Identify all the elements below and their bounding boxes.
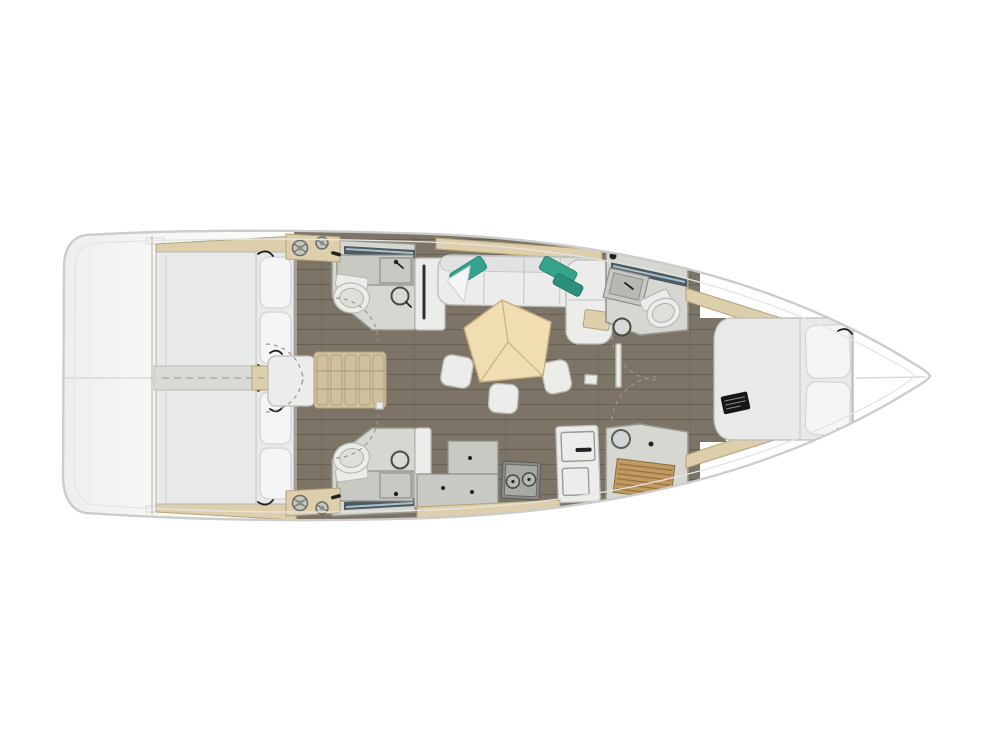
floor-hatch [585,375,597,385]
deck-hardware-port [286,234,341,262]
floor-hatch [376,402,383,409]
aft-cabin-port [156,236,296,368]
aft-cabin-starboard [156,388,296,520]
stair-slats [315,355,385,405]
landing-platform [268,356,316,406]
porthole [612,430,630,448]
galley-counter-upper [448,441,498,475]
faucet [394,492,398,496]
aft-port-pillow-1 [260,257,291,308]
round-washbasin [392,452,409,469]
floor-plan-canvas [0,0,1000,750]
winch-icon [293,496,308,511]
deck-fitting [649,442,654,447]
passage-door [616,344,621,387]
fwd-pillow-1 [805,324,851,379]
winch-icon [293,241,308,256]
stool [488,383,519,414]
yacht-floor-plan [0,0,1000,750]
stool [439,354,474,390]
stove-2-burner [501,461,541,500]
fridge-cabinet [556,425,601,502]
companionway [268,351,386,412]
bow-centerline [856,377,926,378]
round-washbasin [614,319,631,336]
